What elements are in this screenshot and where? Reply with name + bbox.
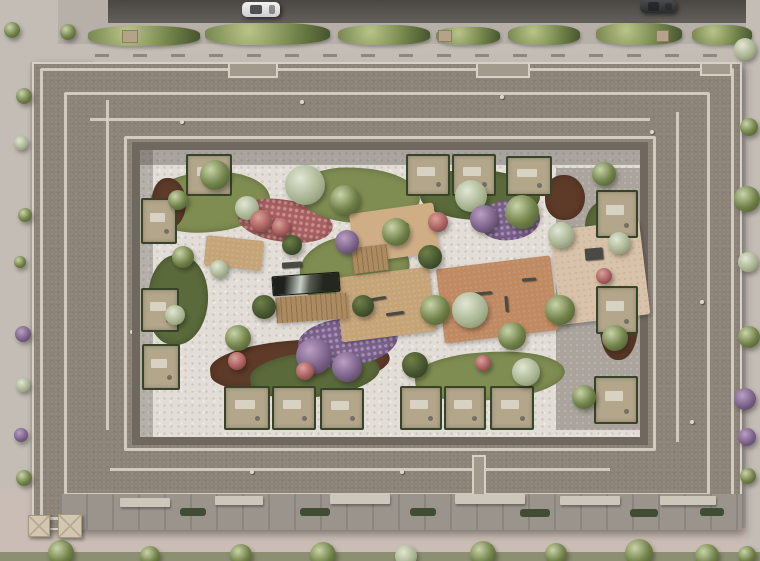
private-terrace xyxy=(272,386,316,430)
terrace-bush xyxy=(734,38,756,60)
facade-hedge xyxy=(630,509,658,517)
courtyard-tree xyxy=(505,195,539,229)
courtyard-tree xyxy=(420,295,450,325)
parapet-step-line xyxy=(90,118,650,121)
private-terrace xyxy=(400,386,442,430)
courtyard-tree xyxy=(210,260,228,278)
street-tree xyxy=(545,543,567,561)
balcony-canopy xyxy=(455,494,525,504)
street-tree xyxy=(470,541,496,561)
facade-hedge xyxy=(410,508,436,516)
courtyard-tree xyxy=(572,385,596,409)
street-tree xyxy=(48,540,74,561)
patio-umbrella xyxy=(28,515,50,537)
courtyard-tree xyxy=(418,245,442,269)
street-tree xyxy=(625,539,653,561)
courtyard-tree xyxy=(608,232,630,254)
wood-deck xyxy=(275,293,349,324)
roof-vent xyxy=(650,130,654,134)
plaza-tree xyxy=(4,22,20,38)
courtyard-tree xyxy=(225,325,251,351)
roof-vent xyxy=(180,120,184,124)
street-tree xyxy=(230,544,252,561)
courtyard-tree xyxy=(452,292,488,328)
top-facade-strip xyxy=(95,54,742,62)
parapet-step-line xyxy=(106,100,109,430)
courtyard-tree xyxy=(402,352,428,378)
private-terrace xyxy=(596,190,638,238)
courtyard-tree xyxy=(250,210,272,232)
street-planter xyxy=(656,30,669,42)
street-bush xyxy=(14,256,26,268)
courtyard-tree xyxy=(282,235,302,255)
street-bush xyxy=(16,378,30,392)
courtyard-tree xyxy=(252,295,276,319)
private-terrace xyxy=(320,388,364,430)
courtyard-tree xyxy=(335,230,359,254)
street-hedge xyxy=(596,23,682,45)
balcony-canopy xyxy=(330,494,390,504)
street-bush xyxy=(16,470,32,486)
private-terrace xyxy=(490,386,534,430)
street-hedge xyxy=(508,25,580,45)
facade-hedge xyxy=(520,509,550,517)
street-hedge xyxy=(88,26,200,46)
private-terrace xyxy=(506,156,552,196)
roof-vent xyxy=(400,470,404,474)
dark-car xyxy=(640,0,676,13)
courtyard-tree xyxy=(165,305,185,325)
courtyard-tree xyxy=(512,358,540,386)
courtyard-tree xyxy=(470,205,498,233)
terrace-bush xyxy=(738,428,756,446)
courtyard-tree xyxy=(332,352,362,382)
courtyard-tree xyxy=(228,352,246,370)
courtyard-tree xyxy=(596,268,612,284)
courtyard-tree xyxy=(168,190,188,210)
roof-vent xyxy=(250,470,254,474)
courtyard-tree xyxy=(548,222,574,248)
facade-hedge xyxy=(300,508,330,516)
street-bush xyxy=(14,428,28,442)
private-terrace xyxy=(406,154,450,196)
play-equipment xyxy=(585,247,604,261)
street-tree xyxy=(310,542,336,561)
street-bush xyxy=(15,326,31,342)
courtyard-tree xyxy=(330,185,360,215)
street-bush xyxy=(16,88,32,104)
courtyard-tree xyxy=(545,295,575,325)
roof-notch xyxy=(228,62,278,78)
terrace-bush xyxy=(738,252,758,272)
courtyard-tree xyxy=(200,160,230,190)
facade-hedge xyxy=(180,508,206,516)
courtyard-tree xyxy=(296,362,314,380)
street-tree xyxy=(140,546,160,561)
courtyard-tree xyxy=(352,295,374,317)
parapet-step-line xyxy=(110,468,610,471)
roof-vent xyxy=(500,95,504,99)
parapet-step-line xyxy=(676,112,679,442)
aerial-courtyard-scene xyxy=(0,0,760,561)
courtyard-tree xyxy=(498,322,526,350)
private-terrace xyxy=(594,376,638,424)
street-hedge xyxy=(338,25,430,45)
terrace-bush xyxy=(740,118,758,136)
courtyard-tree xyxy=(172,246,194,268)
private-terrace xyxy=(142,344,180,390)
terrace-bush xyxy=(738,326,760,348)
courtyard-tree xyxy=(382,218,410,246)
roof-notch xyxy=(476,62,530,78)
courtyard-tree xyxy=(602,325,628,351)
terrace-bush xyxy=(740,468,756,484)
street-tree xyxy=(738,546,756,561)
roof-vent xyxy=(300,100,304,104)
courtyard-tree xyxy=(592,162,616,186)
balcony-canopy xyxy=(660,496,716,505)
private-terrace xyxy=(224,386,270,430)
street-bush xyxy=(14,136,28,150)
top-left-plaza-strip xyxy=(30,0,58,62)
roof-notch xyxy=(700,62,732,76)
street-tree xyxy=(395,545,417,561)
courtyard-tree xyxy=(285,165,325,205)
roof-vent xyxy=(700,300,704,304)
courtyard-tree xyxy=(428,212,448,232)
balcony-canopy xyxy=(120,498,170,507)
roof-vent xyxy=(690,420,694,424)
patio-umbrella xyxy=(58,514,82,538)
terrace-bush xyxy=(734,388,756,410)
facade-hedge xyxy=(700,508,724,516)
street-planter xyxy=(438,30,452,42)
white-car xyxy=(242,2,280,17)
street-bush xyxy=(18,208,32,222)
balcony-canopy xyxy=(560,496,620,505)
plaza-tree xyxy=(60,24,76,40)
street-tree xyxy=(695,544,719,561)
street-planter xyxy=(122,30,138,43)
street-hedge xyxy=(205,23,330,45)
courtyard-tree xyxy=(272,218,290,236)
balcony-canopy xyxy=(215,496,263,505)
terrace-bush xyxy=(734,186,760,212)
courtyard-tree xyxy=(475,355,491,371)
private-terrace xyxy=(444,386,486,430)
